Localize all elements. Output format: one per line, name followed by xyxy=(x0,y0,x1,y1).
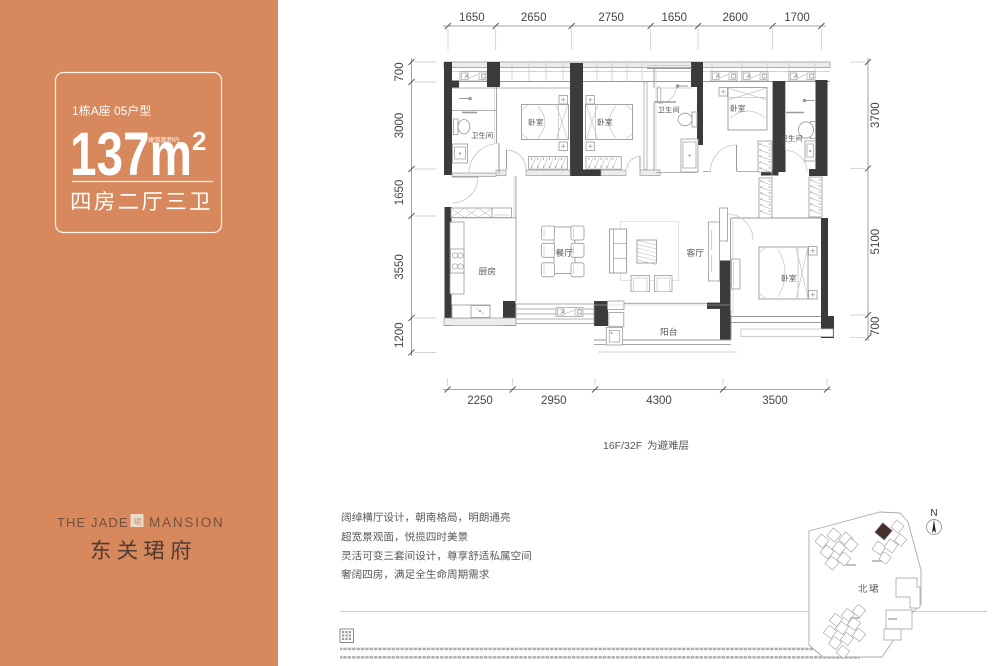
svg-text:3000: 3000 xyxy=(394,113,406,139)
svg-text:700: 700 xyxy=(394,62,406,81)
svg-text:1700: 1700 xyxy=(784,12,810,24)
svg-text:A: A xyxy=(716,75,720,81)
svg-text:A: A xyxy=(747,75,751,81)
svg-text:2650: 2650 xyxy=(521,12,547,24)
svg-text:MANSION: MANSION xyxy=(149,515,225,530)
svg-text:N: N xyxy=(930,508,937,519)
svg-text:2600: 2600 xyxy=(723,12,749,24)
svg-text:3700: 3700 xyxy=(870,102,882,128)
svg-text:137m: 137m xyxy=(70,120,192,188)
svg-text:2950: 2950 xyxy=(541,395,567,407)
svg-text:2750: 2750 xyxy=(598,12,624,24)
svg-text:2250: 2250 xyxy=(467,395,493,407)
svg-text:1650: 1650 xyxy=(459,12,485,24)
svg-text:700: 700 xyxy=(870,317,882,336)
svg-text:THE JADE: THE JADE xyxy=(57,515,129,530)
svg-text:1: 1 xyxy=(72,104,79,118)
svg-text:C: C xyxy=(762,75,767,81)
svg-text:16F/32F: 16F/32F xyxy=(603,440,642,452)
svg-text:A: A xyxy=(561,310,565,316)
svg-text:C: C xyxy=(577,310,582,316)
svg-text:C: C xyxy=(809,75,814,81)
svg-text:4300: 4300 xyxy=(646,395,672,407)
svg-text:1200: 1200 xyxy=(394,322,406,348)
svg-text:C: C xyxy=(731,75,736,81)
svg-text:A: A xyxy=(465,75,469,81)
svg-text:1650: 1650 xyxy=(394,180,406,206)
svg-text:2: 2 xyxy=(192,126,206,156)
svg-text:3550: 3550 xyxy=(394,254,406,280)
svg-text:05: 05 xyxy=(114,104,128,118)
svg-text:1650: 1650 xyxy=(662,12,688,24)
svg-text:A: A xyxy=(91,104,99,118)
svg-text:C: C xyxy=(481,75,486,81)
svg-text:5100: 5100 xyxy=(870,229,882,255)
svg-text:A: A xyxy=(794,75,798,81)
svg-text:3500: 3500 xyxy=(762,395,788,407)
